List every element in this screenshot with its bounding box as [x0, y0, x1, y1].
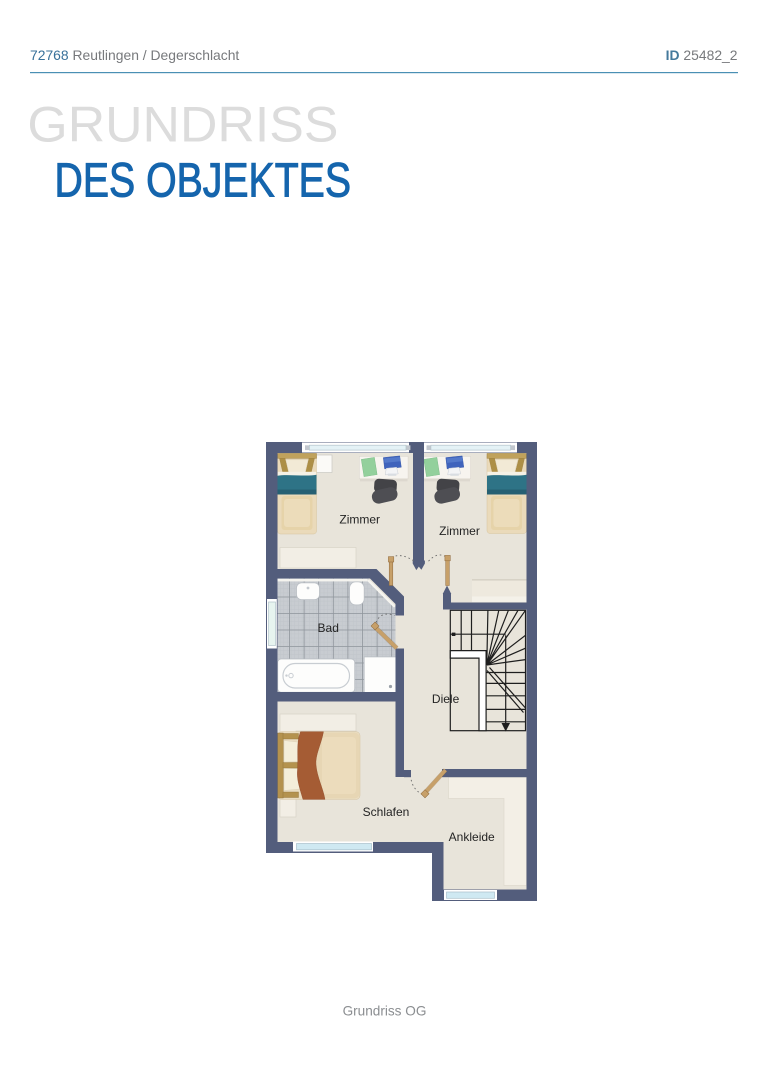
svg-text:Zimmer: Zimmer	[439, 524, 480, 538]
svg-text:Ankleide: Ankleide	[449, 830, 495, 844]
svg-text:Bad: Bad	[318, 621, 339, 635]
svg-text:Schlafen: Schlafen	[363, 805, 410, 819]
svg-text:72768 Reutlingen / Degerschlac: 72768 Reutlingen / Degerschlacht	[30, 47, 239, 63]
svg-text:DES OBJEKTES: DES OBJEKTES	[55, 155, 352, 208]
svg-text:ID 25482_2: ID 25482_2	[666, 47, 738, 63]
svg-text:GRUNDRISS: GRUNDRISS	[27, 97, 338, 153]
svg-text:Zimmer: Zimmer	[339, 512, 380, 526]
svg-text:Diele: Diele	[432, 692, 460, 706]
svg-text:Grundriss OG: Grundriss OG	[343, 1004, 427, 1019]
